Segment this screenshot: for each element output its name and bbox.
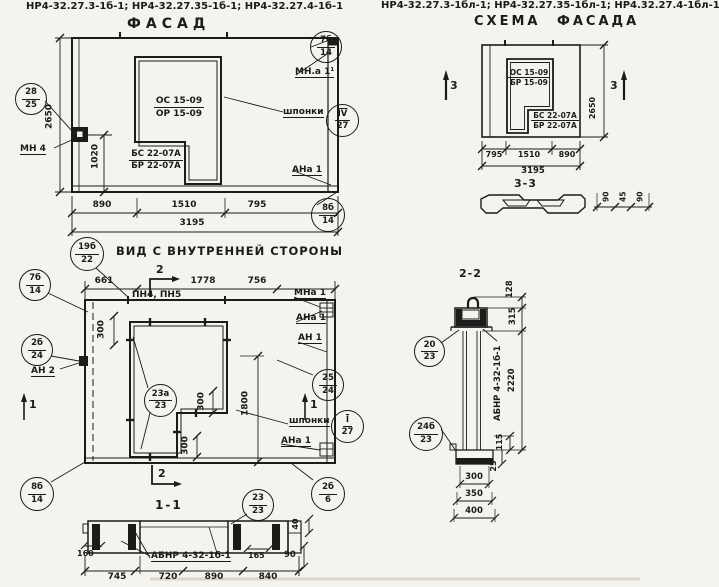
callout-bottom: 6 xyxy=(325,495,331,506)
callout-top: 28 xyxy=(22,87,40,99)
callout-bottom: 23 xyxy=(252,506,264,517)
callout-top: I xyxy=(343,415,352,427)
facade-dim-2650: 2650 xyxy=(46,100,55,134)
callout-top: 8б xyxy=(319,203,337,215)
callout-bottom: 14 xyxy=(29,286,41,297)
interior-dim-300-a: 300 xyxy=(98,318,107,342)
interior-section-2-bottom: 2 xyxy=(158,468,166,481)
interior-dim-1800: 1800 xyxy=(242,388,251,420)
callout-top: 8б xyxy=(28,482,46,494)
callout-bottom: 14 xyxy=(320,48,332,59)
interior-dim-300-b: 300 xyxy=(198,390,207,414)
section-1-1-callout-23-23: 23 23 xyxy=(242,489,274,521)
scheme-window-mark: ОС 15-09 БР 15-09 xyxy=(506,68,552,89)
interior-section-1-left: 1 xyxy=(29,399,37,412)
callout-bottom: 24 xyxy=(322,386,334,397)
interior-callout-8b-14: 8б 14 xyxy=(20,477,54,511)
interior-label-an1: АН 1 xyxy=(298,333,322,344)
scheme-dim-3195: 3195 xyxy=(516,167,550,177)
scheme-section-3-right: 3 xyxy=(610,80,618,93)
scheme-door-mark-top: БС 22-07А xyxy=(531,111,579,121)
callout-bottom: 14 xyxy=(322,216,334,227)
section-1-1-dim-90: 90 xyxy=(284,551,296,561)
callout-top: 23а xyxy=(149,389,173,401)
callout-bottom: 23 xyxy=(420,435,432,446)
facade-label-shponki: шпонки xyxy=(283,107,324,118)
interior-section-1-right: 1 xyxy=(310,399,318,412)
title-left: НР4-32.27.3-1б-1; НР4-32.27.35-1б-1; НР4… xyxy=(26,1,343,13)
facade-heading: ФАСАД xyxy=(127,16,210,32)
facade-label-mna1: МН.а 1¹ xyxy=(295,67,334,78)
section-2-2-dim-350: 350 xyxy=(457,490,491,500)
interior-callout-2b-24: 2б 24 xyxy=(21,334,53,366)
interior-label-ana1-bottom: АНа 1 xyxy=(281,436,311,447)
facade-door-mark-top: БС 22-07А xyxy=(129,149,182,161)
callout-top: IV xyxy=(335,109,351,121)
section-2-2-dim-128: 128 xyxy=(506,277,515,301)
section-2-2-dim-400: 400 xyxy=(456,507,492,517)
section-3-3-dim-1: 90 xyxy=(602,189,610,205)
callout-top: 7б xyxy=(26,273,44,285)
facade-window-mark-bottom: ОР 15-09 xyxy=(148,108,210,120)
title-right: НР4-32.27.3-1бл-1; НР4-32.27.35-1бл-1; Н… xyxy=(381,0,719,12)
section-2-2-dim-300: 300 xyxy=(458,473,490,483)
scheme-section-3-left: 3 xyxy=(450,80,458,93)
interior-callout-19b-22: 19б 22 xyxy=(70,237,104,271)
callout-bottom: 14 xyxy=(31,495,43,506)
facade-callout-8b-14: 8б 14 xyxy=(311,198,345,232)
section-1-1-label: АБНР 4-32-1б-1 xyxy=(151,551,231,562)
callout-bottom: 24 xyxy=(31,351,43,362)
interior-callout-23a-23: 23а 23 xyxy=(144,384,177,417)
facade-dim-795: 795 xyxy=(239,200,275,210)
section-1-1-dim-40: 40 xyxy=(292,516,300,532)
section-1-1-dim-720: 720 xyxy=(150,572,186,582)
facade-dim-1020: 1020 xyxy=(92,142,101,172)
scheme-dim-1510: 1510 xyxy=(512,150,546,159)
scheme-dim-2650: 2650 xyxy=(589,92,597,124)
section-2-2-callout-20-23: 20 23 xyxy=(414,336,445,367)
section-2-2-dim-2220: 2220 xyxy=(508,364,517,396)
callout-top: 20 xyxy=(421,340,439,352)
interior-label-mna1: МНа 1 xyxy=(294,288,326,299)
interior-label-pn4-pn5: ПН4, ПН5 xyxy=(132,290,181,301)
callout-top: 25 xyxy=(319,373,337,385)
callout-bottom: 23 xyxy=(155,401,167,412)
section-1-1-dim-165: 165 xyxy=(248,551,265,560)
callout-bottom: 22 xyxy=(81,255,93,266)
facade-dim-1510: 1510 xyxy=(166,200,202,210)
section-3-3-dim-2: 45 xyxy=(619,189,627,205)
interior-dim-1778: 1778 xyxy=(185,276,221,286)
callout-top: 24б xyxy=(414,422,438,434)
interior-callout-shponki-zone: I 27 xyxy=(331,410,364,443)
callout-bottom: 27 xyxy=(337,121,349,132)
scheme-dim-890: 890 xyxy=(552,150,582,159)
scheme-window-mark-bottom: БР 15-09 xyxy=(506,78,552,88)
interior-dim-661: 661 xyxy=(86,276,122,286)
callout-top: 7б xyxy=(317,35,335,47)
callout-top: 2б xyxy=(319,482,337,494)
callout-top: 23 xyxy=(249,493,267,505)
section-1-1-dim-840: 840 xyxy=(250,572,286,582)
interior-section-2-top: 2 xyxy=(156,264,164,277)
callout-top: 19б xyxy=(75,242,99,254)
section-2-2-dim-115: 115 xyxy=(496,430,504,454)
facade-window-mark-top: ОС 15-09 xyxy=(154,96,204,108)
section-1-1-heading: 1-1 xyxy=(155,499,183,513)
section-1-1-dim-745: 745 xyxy=(99,572,135,582)
facade-dim-890: 890 xyxy=(84,200,120,210)
facade-window-mark: ОС 15-09 ОР 15-09 xyxy=(148,96,210,120)
interior-dim-300-c: 300 xyxy=(182,434,191,458)
interior-callout-2b-6: 2б 6 xyxy=(311,477,345,511)
section-2-2-callout-24b-23: 24б 23 xyxy=(409,417,443,451)
callout-bottom: 27 xyxy=(342,427,354,438)
interior-label-ana1: АНа 1 xyxy=(296,313,326,324)
facade-dim-3195: 3195 xyxy=(174,218,210,228)
facade-callout-28-25: 28 25 xyxy=(15,83,47,115)
callout-bottom: 25 xyxy=(25,100,37,111)
callout-top: 2б xyxy=(28,338,46,350)
facade-callout-7b-14: 7б 14 xyxy=(310,31,342,63)
section-3-3-heading: 3-3 xyxy=(514,178,537,191)
facade-label-ana1: АНа 1 xyxy=(292,165,322,176)
interior-dim-756: 756 xyxy=(239,276,275,286)
facade-door-mark: БС 22-07А БР 22-07А xyxy=(124,149,188,172)
interior-label-shponki: шпонки xyxy=(289,416,330,427)
scheme-door-mark-bottom: БР 22-07А xyxy=(527,121,583,131)
section-2-2-dim-25: 25 xyxy=(490,458,498,474)
scheme-door-mark: БС 22-07А БР 22-07А xyxy=(527,111,583,132)
interior-heading: ВИД С ВНУТРЕННЕЙ СТОРОНЫ xyxy=(116,245,343,258)
interior-callout-7b-14: 7б 14 xyxy=(19,269,51,301)
interior-section-marks xyxy=(21,276,308,487)
scheme-heading: СХЕМА ФАСАДА xyxy=(474,15,639,30)
section-2-2-profile xyxy=(441,298,497,464)
section-2-2-heading: 2-2 xyxy=(459,268,482,281)
interior-callout-25-24: 25 24 xyxy=(312,369,344,401)
section-1-1-dim-890: 890 xyxy=(196,572,232,582)
interior-label-an2: АН 2 xyxy=(31,366,55,377)
scheme-dim-795: 795 xyxy=(480,150,508,159)
facade-callout-shponki-zone: IV 27 xyxy=(326,104,359,137)
facade-anchor-mn4 xyxy=(72,127,88,142)
section-1-1-dim-160: 160 xyxy=(77,549,94,558)
facade-door-mark-bottom: БР 22-07А xyxy=(124,161,188,172)
section-2-2-label: АБНР 4-32-1б-1 xyxy=(494,338,503,428)
drawing-sheet: НР4-32.27.3-1б-1; НР4-32.27.35-1б-1; НР4… xyxy=(0,0,719,587)
scheme-window-mark-top: ОС 15-09 xyxy=(508,68,550,78)
section-3-3-dim-3: 90 xyxy=(636,189,644,205)
callout-bottom: 23 xyxy=(424,352,436,363)
facade-label-mn4: МН 4 xyxy=(20,144,46,155)
section-2-2-dim-315: 315 xyxy=(509,304,518,328)
